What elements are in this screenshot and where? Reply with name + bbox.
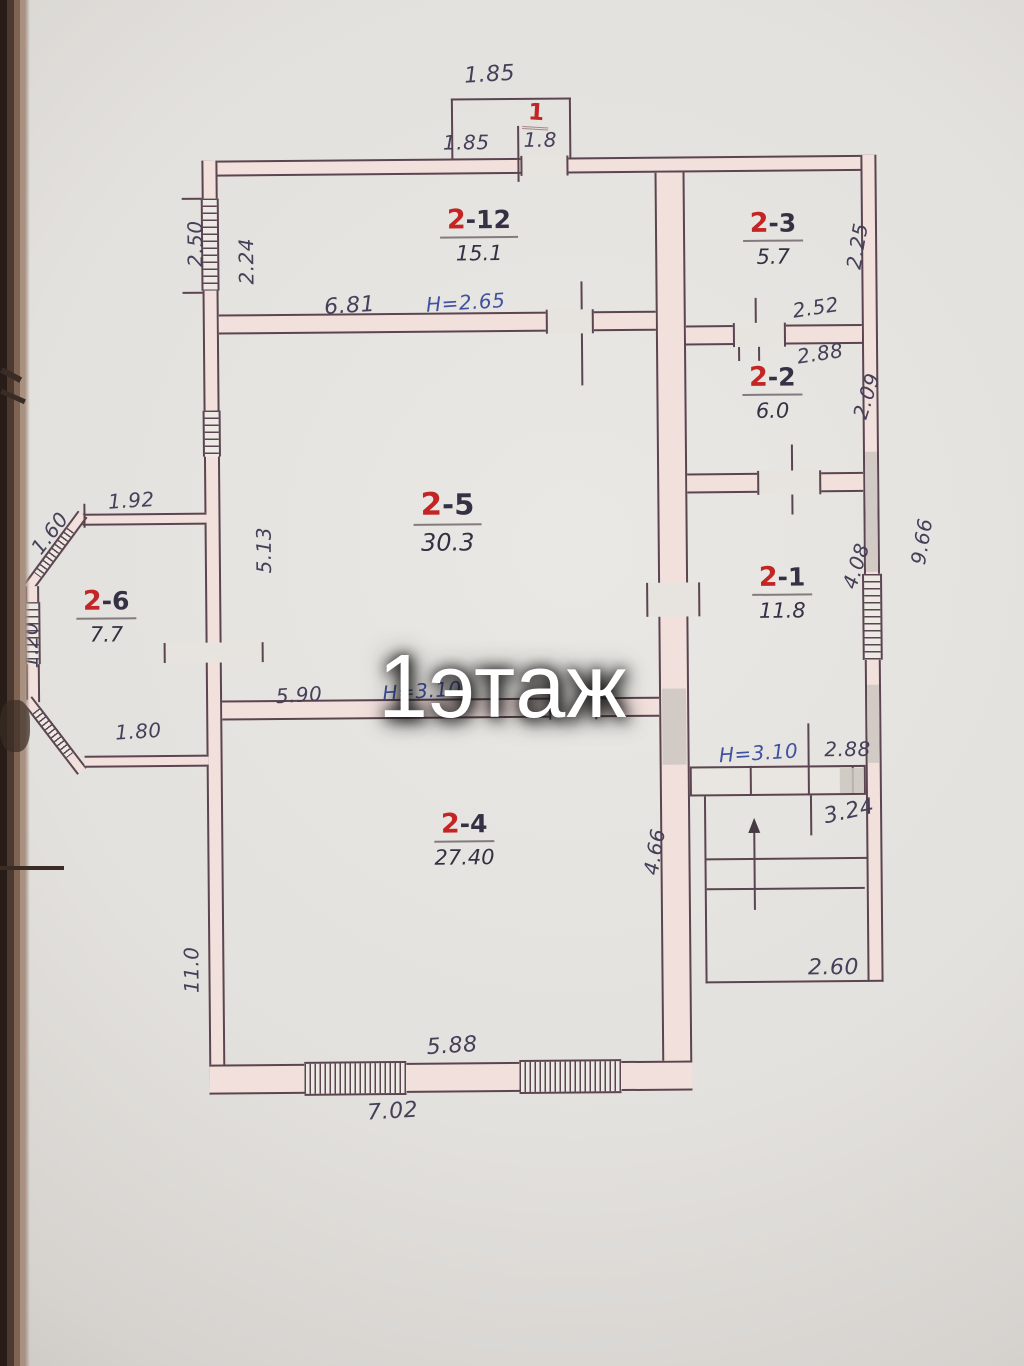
photo-artifact bbox=[0, 700, 30, 752]
room-label-2-12: 2-12 15.1 bbox=[429, 204, 530, 266]
dim-2-50: 2.50 bbox=[183, 212, 208, 276]
room-area-2-2: 6.0 bbox=[756, 396, 790, 423]
room-area-2-1: 11.8 bbox=[759, 595, 806, 622]
dim-7-02: 7.02 bbox=[360, 1097, 425, 1126]
room-label-2-1: 2-1 11.8 bbox=[732, 561, 833, 623]
dimension-tick bbox=[807, 723, 809, 767]
room-area-2-3: 5.7 bbox=[756, 242, 790, 269]
wall-cell-divider bbox=[750, 766, 752, 796]
room-area-2-5: 30.3 bbox=[421, 525, 475, 556]
door-opening-2-1 bbox=[646, 582, 700, 616]
door-opening-2-12 bbox=[546, 309, 594, 333]
dimension-tick bbox=[810, 795, 812, 835]
floor-watermark: 1этаж bbox=[378, 636, 627, 739]
wall-top-right bbox=[568, 155, 876, 174]
wall-shading bbox=[840, 768, 864, 793]
dim-9-66: 9.66 bbox=[905, 508, 939, 575]
room-label-2-2: 2-2 6.0 bbox=[722, 361, 823, 423]
dim-5-90: 5.90 bbox=[266, 681, 331, 709]
room-label-2-6: 2-6 7.7 bbox=[56, 585, 157, 647]
room-area-2-12: 15.1 bbox=[456, 238, 503, 265]
stairs-up-arrow-icon bbox=[748, 818, 760, 833]
bay-wall-bottom-diagonal bbox=[23, 696, 87, 775]
bay-wall-top bbox=[82, 513, 206, 526]
dim-2-88-corridor: 2.88 bbox=[815, 737, 879, 762]
dimension-tick bbox=[738, 345, 740, 361]
door-opening-2-2 bbox=[757, 470, 821, 495]
window-2-5-left bbox=[203, 411, 221, 457]
wall-shading bbox=[662, 688, 687, 764]
room-area-2-4: 27.40 bbox=[434, 842, 494, 870]
window-bottom-left bbox=[304, 1061, 406, 1096]
paper-edge bbox=[0, 0, 30, 1366]
dimension-tick bbox=[83, 504, 85, 528]
dimension-tick bbox=[183, 292, 203, 294]
stair-step-line bbox=[707, 887, 865, 890]
dim-2-60: 2.60 bbox=[801, 955, 865, 981]
wall-top-under-porch bbox=[451, 158, 521, 175]
window-bay-bottom bbox=[31, 707, 75, 759]
window-2-1-right bbox=[862, 574, 883, 660]
dim-porch-left: 1.85 bbox=[434, 130, 498, 155]
stairs-up-arrow-shaft bbox=[753, 830, 756, 910]
room-label-2-3: 2-3 5.7 bbox=[723, 207, 824, 269]
stair-step-line bbox=[706, 857, 866, 860]
wall-cell-divider bbox=[808, 765, 810, 795]
dim-porch-right: 1.8 bbox=[508, 127, 572, 152]
window-bottom-right bbox=[519, 1059, 621, 1094]
porch-wall-top bbox=[451, 97, 571, 100]
photo-artifact bbox=[0, 866, 64, 870]
wall-left bbox=[201, 161, 225, 1095]
room-label-2-5: 2-5 30.3 bbox=[397, 486, 498, 557]
stairs-wall-bottom bbox=[706, 980, 884, 984]
dim-5-88: 5.88 bbox=[419, 1032, 484, 1061]
dim-6-81: 6.81 bbox=[317, 291, 382, 320]
dim-5-13: 5.13 bbox=[252, 518, 277, 582]
room-area-2-6: 7.7 bbox=[90, 619, 124, 646]
door-opening-porch bbox=[520, 155, 568, 175]
door-opening-2-3 bbox=[733, 323, 786, 347]
dimension-tick bbox=[758, 345, 760, 361]
door-opening-2-6 bbox=[164, 642, 264, 663]
bay-wall-bottom bbox=[85, 755, 209, 768]
dim-2-52: 2.52 bbox=[782, 291, 849, 324]
dim-11-0: 11.0 bbox=[179, 938, 204, 1002]
dimension-tick bbox=[182, 198, 202, 200]
room-label-2-4: 2-4 27.40 bbox=[414, 808, 515, 870]
dim-2-09: 2.09 bbox=[845, 362, 887, 430]
dim-porch-width: 1.85 bbox=[457, 60, 522, 89]
dim-1-92: 1.92 bbox=[99, 486, 164, 514]
dim-1-80: 1.80 bbox=[106, 717, 171, 745]
dim-h-3-10: H=3.10 bbox=[713, 738, 804, 767]
porch-number: 1 bbox=[522, 99, 550, 131]
dim-2-24: 2.24 bbox=[234, 229, 259, 293]
photographed-floor-plan: 1.85 1 1.85 1.8 2-12 15.1 2-3 5.7 2-2 6.… bbox=[0, 0, 1024, 1366]
wall-top-left bbox=[201, 158, 453, 176]
